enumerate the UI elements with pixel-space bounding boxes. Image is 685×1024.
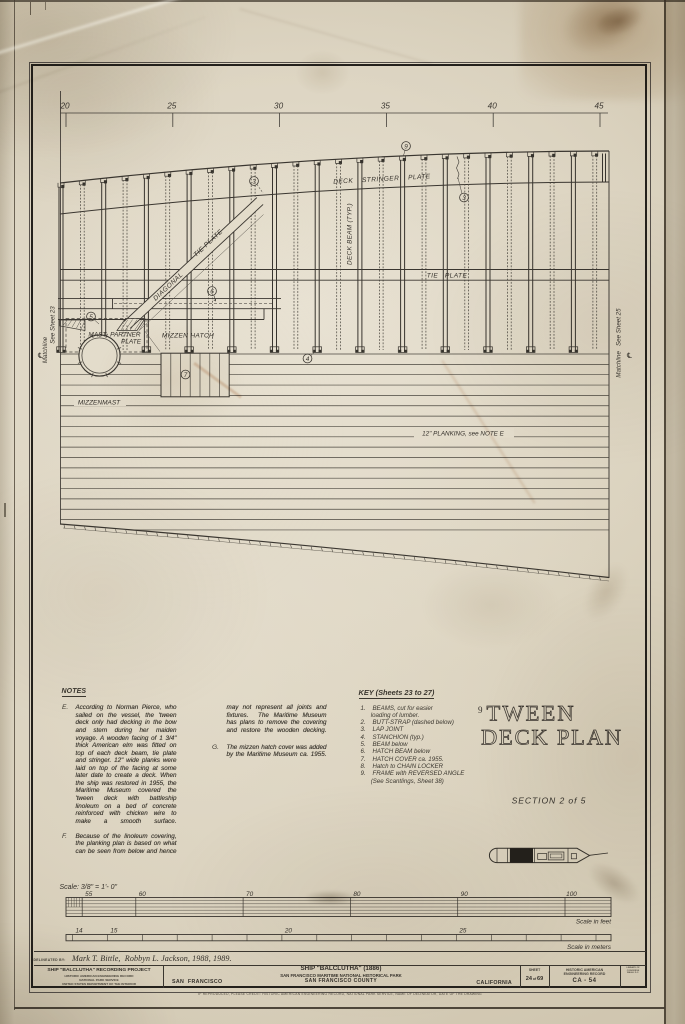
svg-text:35: 35	[381, 102, 391, 111]
svg-text:9: 9	[404, 143, 408, 150]
svg-text:80: 80	[353, 891, 361, 898]
svg-text:40: 40	[488, 102, 498, 111]
svg-text:SECTION 2 of 5: SECTION 2 of 5	[512, 796, 587, 806]
svg-text:℄: ℄	[626, 351, 633, 360]
svg-text:Matchline: Matchline	[42, 336, 49, 363]
svg-text:14: 14	[75, 928, 83, 935]
svg-text:DECK BEAM (TYP.): DECK BEAM (TYP.)	[347, 203, 354, 265]
svg-text:7: 7	[184, 372, 188, 379]
svg-text:100: 100	[566, 891, 577, 898]
svg-text:See Sheet 23: See Sheet 23	[50, 306, 57, 344]
svg-text:9: 9	[478, 705, 483, 715]
svg-text:TIE PLATE: TIE PLATE	[427, 273, 468, 280]
svg-text:MIZZEN HATCH: MIZZEN HATCH	[162, 333, 214, 340]
svg-text:20: 20	[59, 102, 70, 111]
svg-text:5: 5	[89, 314, 93, 321]
svg-text:3: 3	[462, 195, 466, 202]
svg-text:TWEEN: TWEEN	[487, 701, 576, 726]
svg-text:DIAGONAL: DIAGONAL	[152, 271, 185, 302]
svg-text:12" PLANKING, see NOTE E: 12" PLANKING, see NOTE E	[422, 431, 504, 438]
svg-text:70: 70	[246, 891, 254, 898]
svg-text:15: 15	[110, 928, 118, 935]
svg-text:6: 6	[210, 288, 214, 295]
svg-text:45: 45	[594, 102, 604, 111]
svg-text:MAST PARTNER: MAST PARTNER	[88, 332, 140, 339]
svg-text:PLATE: PLATE	[121, 339, 142, 346]
svg-text:20: 20	[284, 928, 293, 935]
svg-text:4: 4	[306, 356, 310, 363]
svg-text:Matchline See Sheet 25: Matchline See Sheet 25	[616, 308, 623, 378]
svg-text:30: 30	[274, 102, 284, 111]
svg-text:25: 25	[166, 102, 177, 111]
svg-text:60: 60	[139, 891, 147, 898]
svg-text:DECK PLAN: DECK PLAN	[481, 724, 623, 749]
svg-text:DECK STRINGER PLATE: DECK STRINGER PLATE	[333, 173, 431, 185]
svg-text:25: 25	[458, 928, 467, 935]
svg-text:55: 55	[85, 891, 93, 898]
svg-text:Scale: 3/8" = 1'- 0": Scale: 3/8" = 1'- 0"	[60, 884, 118, 891]
svg-text:90: 90	[461, 891, 469, 898]
svg-text:3: 3	[252, 178, 256, 185]
svg-text:Scale in meters: Scale in meters	[567, 944, 612, 951]
svg-text:Scale in feet: Scale in feet	[576, 919, 611, 926]
svg-text:MIZZENMAST: MIZZENMAST	[78, 400, 121, 407]
